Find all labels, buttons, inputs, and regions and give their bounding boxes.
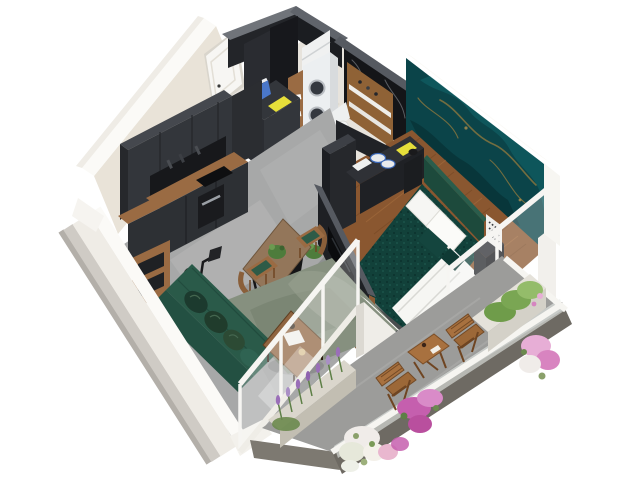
gold-fleck xyxy=(464,126,467,129)
nightstand-lamp xyxy=(409,149,418,155)
door-handle xyxy=(217,84,220,87)
floor-plan-render xyxy=(0,0,640,480)
kitchen-cabinet-side xyxy=(120,144,128,220)
washer-door xyxy=(310,81,325,96)
cosmetic-bottle xyxy=(366,86,370,90)
floor-plan-svg xyxy=(0,0,640,480)
table-plant-leaf xyxy=(269,244,275,250)
bottle xyxy=(422,343,426,347)
cosmetic-bottle xyxy=(374,92,378,96)
striped-box xyxy=(381,160,395,168)
table-plant-leaf xyxy=(280,246,285,251)
cosmetic-bottle xyxy=(358,80,362,84)
flower-cascade-pink-east xyxy=(519,335,560,380)
planter-greenery xyxy=(272,417,300,431)
gold-fleck xyxy=(519,199,522,202)
privacy-wall-side xyxy=(356,302,364,358)
